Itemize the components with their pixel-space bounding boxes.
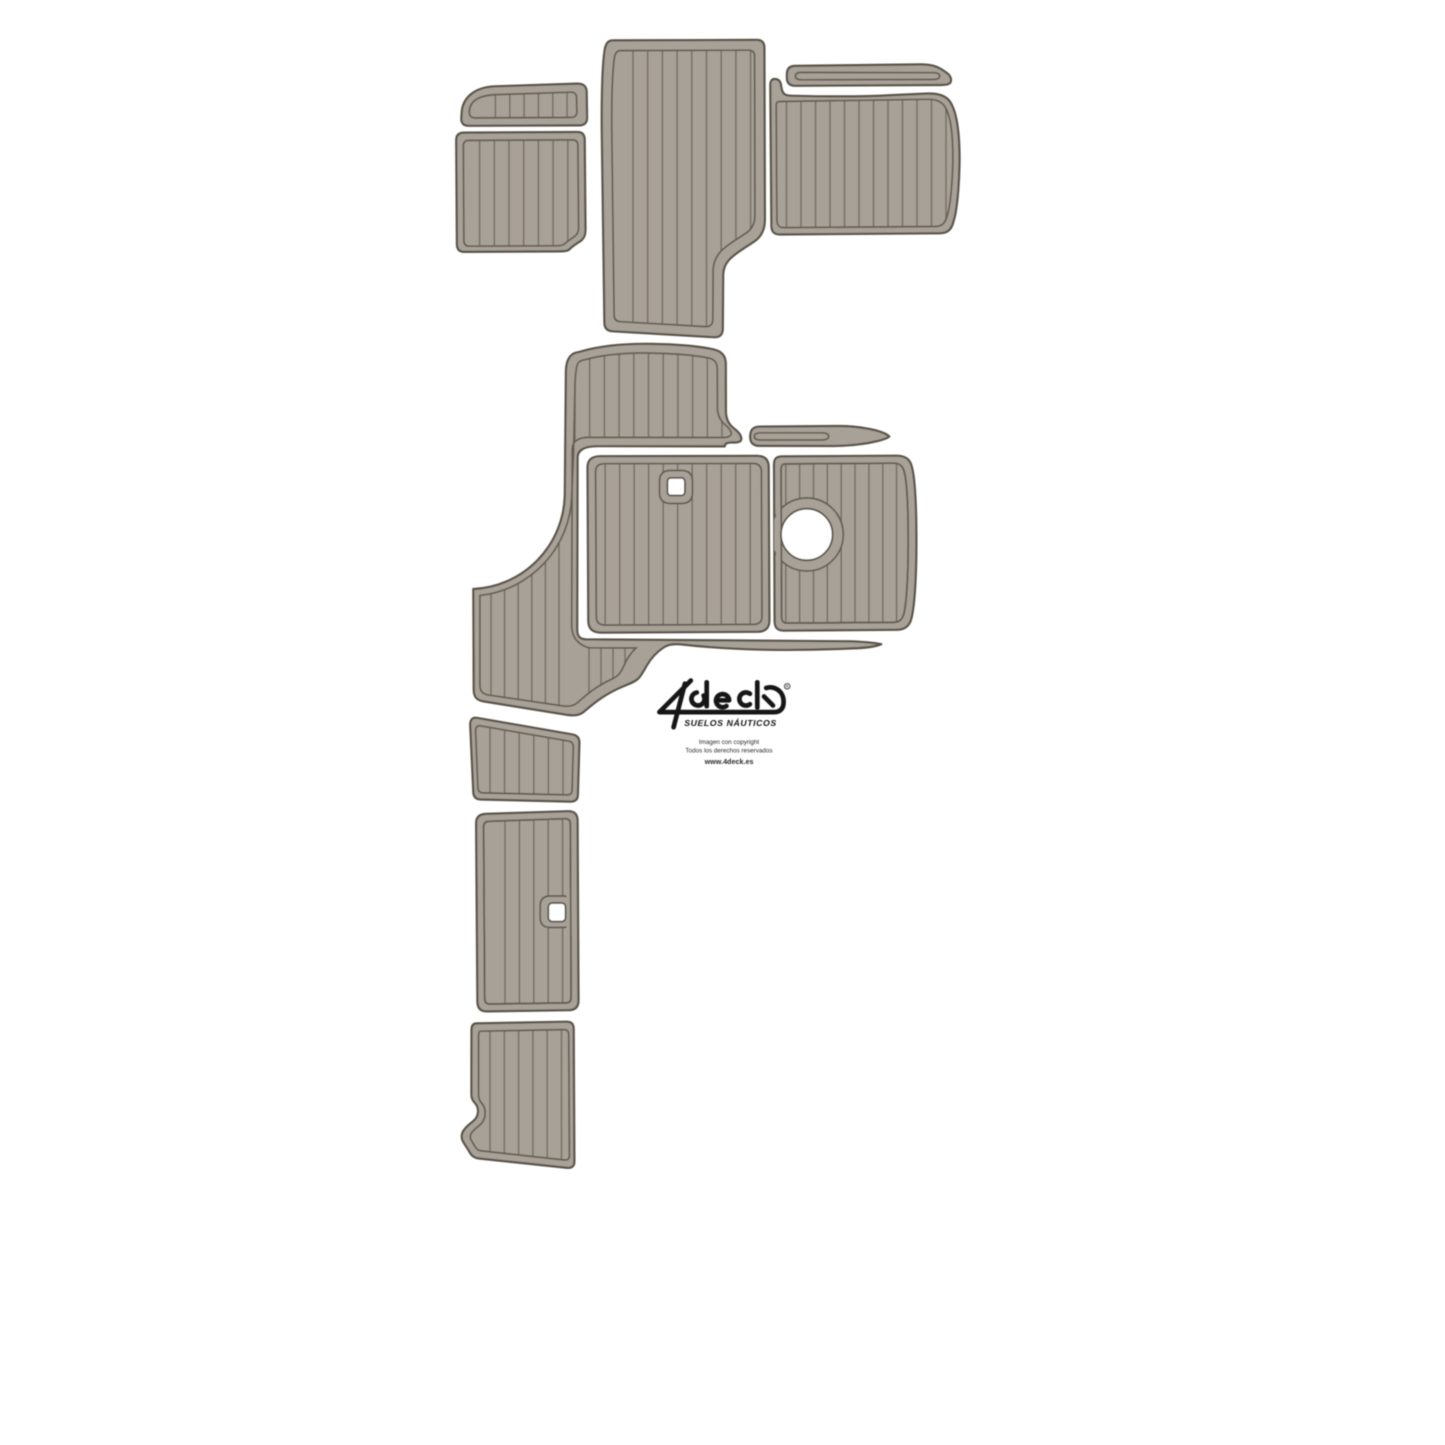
svg-text:www.4deck.es: www.4deck.es bbox=[704, 757, 754, 766]
svg-text:Todos los derechos reservados: Todos los derechos reservados bbox=[685, 748, 772, 755]
svg-text:Imagen con copyright: Imagen con copyright bbox=[699, 739, 759, 746]
svg-text:R: R bbox=[786, 684, 789, 689]
svg-text:SUELOS NÁUTICOS: SUELOS NÁUTICOS bbox=[684, 718, 777, 728]
